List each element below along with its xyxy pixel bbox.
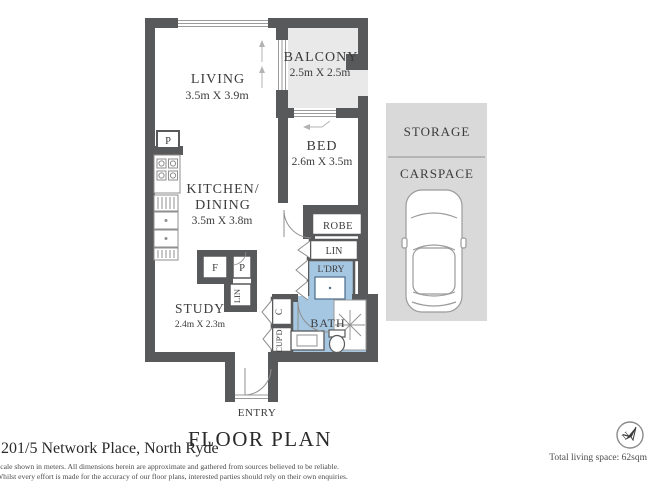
pantry-label: P [239, 263, 245, 274]
living-dims: 3.5m X 3.9m [185, 88, 249, 102]
study-dims: 2.4m X 2.3m [175, 320, 226, 330]
wall [197, 278, 233, 284]
carspace-label: CARSPACE [400, 166, 474, 181]
disclaimer: Scale shown in meters. All dimensions he… [0, 462, 368, 481]
wall [227, 256, 233, 278]
kitchen-pantry-label: P [165, 136, 171, 147]
linen-label: LIN [326, 246, 343, 257]
laundry-bifold [296, 260, 308, 280]
kitchen-label-line2: DINING [195, 198, 251, 213]
balcony-dims: 2.5m X 2.5m [290, 67, 351, 79]
car-mirror [461, 238, 466, 248]
cupboard-label: CUP'D [275, 329, 284, 352]
wall [336, 108, 368, 118]
disclaimer-line1: Scale shown in meters. All dimensions he… [0, 462, 368, 472]
fridge-label: F [212, 263, 218, 274]
storage-label: STORAGE [404, 124, 471, 139]
floor-plan-drawing: LIVING 3.5m X 3.9m BALCONY 2.5m X 2.5m B… [0, 0, 660, 420]
wall [272, 352, 378, 362]
wall [276, 28, 288, 40]
floor-plan-page: LIVING 3.5m X 3.9m BALCONY 2.5m X 2.5m B… [0, 0, 660, 495]
bed-label: BED [307, 139, 338, 154]
wall [251, 250, 257, 308]
wall [145, 18, 178, 28]
bed-dims: 2.6m X 3.5m [292, 156, 353, 168]
vanity [291, 331, 324, 350]
laundry-label: L'DRY [317, 265, 344, 275]
balcony-label: BALCONY [284, 50, 359, 65]
toilet [330, 336, 345, 353]
total-living-space: Total living space: 62sqm [549, 453, 647, 463]
wall [145, 352, 235, 362]
bath-label: BATH [310, 316, 345, 330]
cupboard-c-bifold [262, 300, 272, 324]
wall [197, 250, 257, 256]
property-address: 1201/5 Network Place, North Ryde [0, 440, 219, 458]
wall [366, 296, 378, 354]
entry-label: ENTRY [238, 407, 277, 419]
cupboard-c-label: C [274, 309, 284, 315]
kitchen-label-line1: KITCHEN/ [186, 182, 259, 197]
kitchen-bench [154, 155, 180, 260]
disclaimer-line2: Whilst every effort is made for the accu… [0, 472, 368, 482]
wall [225, 352, 235, 402]
entry-door-arc [245, 369, 271, 395]
robe-label: ROBE [323, 221, 353, 232]
wall [197, 256, 203, 278]
cupboard-bifold [263, 328, 272, 350]
wall [224, 306, 257, 312]
car-icon [402, 190, 466, 312]
study-label: STUDY [175, 301, 225, 316]
wall [358, 28, 368, 56]
wall [278, 118, 288, 203]
living-label: LIVING [191, 72, 245, 87]
linen2-label: LIN [232, 289, 242, 303]
wall [276, 108, 296, 118]
north-compass-icon: N [615, 420, 645, 450]
linen-bifold [298, 241, 310, 258]
kitchen-dims: 3.5m X 3.8m [192, 215, 253, 227]
car-mirror [402, 238, 407, 248]
wall [268, 18, 368, 28]
